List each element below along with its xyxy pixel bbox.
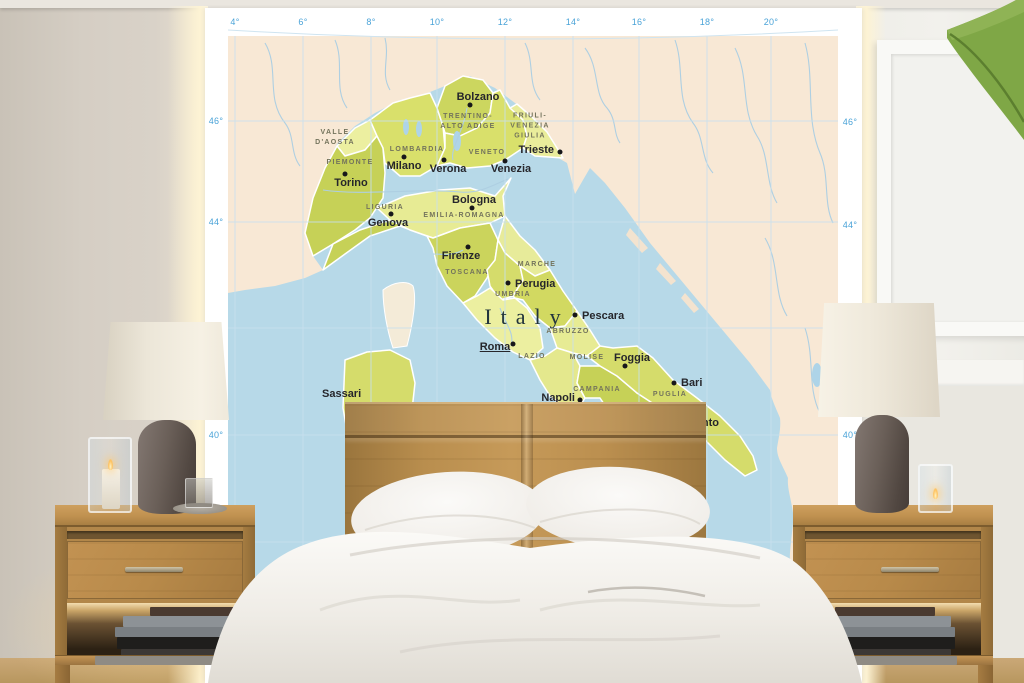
region-label: PUGLIA (653, 390, 687, 400)
region-label: UMBRIA (495, 290, 531, 300)
city-label: Trieste (519, 144, 554, 156)
hurricane-candle-holder-right (918, 464, 953, 513)
table-lamp-shade-right (818, 303, 940, 417)
bed-bedding (200, 460, 870, 683)
city-dot-trieste (558, 150, 563, 155)
city-dot-milano (402, 155, 407, 160)
city-label: Sassari (322, 388, 361, 400)
city-label: Venezia (491, 163, 531, 175)
nightstand-leg (978, 665, 993, 683)
city-label: Roma (480, 341, 511, 353)
city-dot-foggia (623, 364, 628, 369)
city-dot-torino (343, 172, 348, 177)
region-label: LIGURIA (366, 203, 404, 213)
region-label: PIEMONTE (327, 158, 374, 168)
latitude-label: 44° (843, 220, 858, 230)
region-label: LAZIO (518, 352, 546, 362)
city-dot-firenze (466, 245, 471, 250)
city-label: Bologna (452, 194, 496, 206)
nightstand-side (55, 527, 67, 657)
longitude-label: 14° (566, 17, 581, 27)
city-label: Foggia (614, 352, 650, 364)
city-label: Genova (368, 217, 408, 229)
table-lamp-shade-left (103, 322, 229, 420)
region-label: TRENTINO- ALTO ADIGE (440, 112, 495, 132)
city-dot-genova (389, 212, 394, 217)
longitude-label: 12° (498, 17, 513, 27)
city-dot-roma (511, 342, 516, 347)
candle-flame (108, 459, 113, 470)
latitude-label: 44° (209, 217, 224, 227)
longitude-label: 8° (366, 17, 375, 27)
city-label: Firenze (442, 250, 481, 262)
longitude-label: 18° (700, 17, 715, 27)
nightstand-side (981, 527, 993, 657)
region-label: MARCHE (518, 260, 557, 270)
city-label: Bolzano (457, 91, 500, 103)
latitude-label: 40° (209, 430, 224, 440)
city-label: Pescara (582, 310, 624, 322)
plant-leaf (928, 0, 1024, 160)
city-dot-perugia (506, 281, 511, 286)
region-label: ABRUZZO (546, 327, 589, 337)
region-label: VALLE D'AOSTA (315, 128, 355, 148)
longitude-label: 16° (632, 17, 647, 27)
city-label: Perugia (515, 278, 555, 290)
city-dot-verona (442, 158, 447, 163)
city-label: Milano (387, 160, 422, 172)
hurricane-candle-holder-left (88, 437, 132, 513)
region-label: VENETO (469, 148, 505, 158)
region-label: FRIULI- VENEZIA GIULIA (510, 111, 549, 140)
latitude-label: 46° (843, 117, 858, 127)
latitude-label: 46° (209, 116, 224, 126)
region-label: LOMBARDIA (390, 145, 444, 155)
city-label: Verona (430, 163, 467, 175)
longitude-label: 10° (430, 17, 445, 27)
region-label: CAMPANIA (573, 385, 621, 395)
drawer-handle (125, 567, 183, 572)
city-dot-bolzano (468, 103, 473, 108)
candle (102, 469, 120, 509)
region-label: TOSCANA (445, 268, 489, 278)
bedroom-scene-photo: 4° 6° 8° 10° 12° 14° 16° 18° 20° 46° 44°… (0, 0, 1024, 683)
city-dot-bari (672, 381, 677, 386)
region-label: MOLISE (570, 353, 605, 363)
city-dot-pescara (573, 313, 578, 318)
region-label: EMILIA-ROMAGNA (423, 211, 504, 221)
longitude-label: 20° (764, 17, 779, 27)
longitude-label: 6° (298, 17, 307, 27)
city-label: Torino (334, 177, 367, 189)
candle-flame (933, 488, 938, 499)
city-label: Bari (681, 377, 702, 389)
country-label-italy: Italy (484, 304, 569, 330)
longitude-label: 4° (230, 17, 239, 27)
city-dot-bologna (470, 206, 475, 211)
duvet (208, 532, 862, 683)
nightstand-leg (55, 665, 70, 683)
drawer-handle (881, 567, 939, 572)
